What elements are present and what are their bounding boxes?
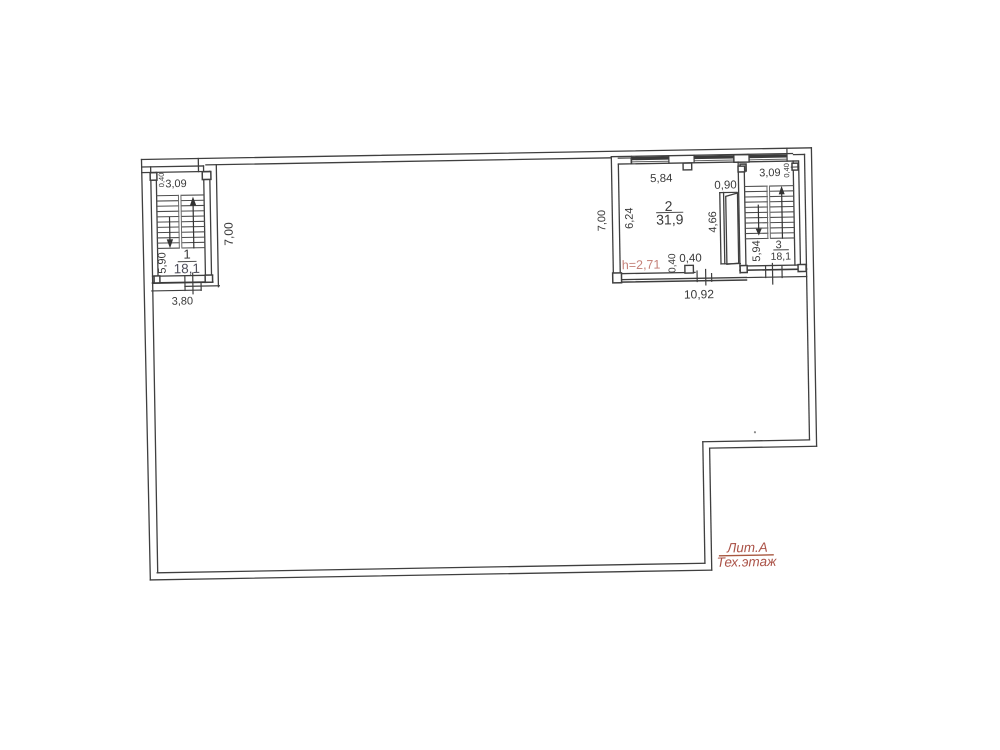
svg-text:h=2,71: h=2,71 (622, 258, 661, 273)
svg-text:18,1: 18,1 (174, 261, 201, 276)
svg-text:3,80: 3,80 (172, 295, 194, 307)
svg-text:3,09: 3,09 (165, 178, 187, 190)
svg-text:0,90: 0,90 (714, 179, 737, 191)
svg-text:5,90: 5,90 (156, 252, 168, 274)
svg-text:7,00: 7,00 (596, 210, 608, 232)
svg-text:3,09: 3,09 (759, 167, 781, 179)
svg-text:0,40: 0,40 (667, 253, 678, 273)
svg-text:0,40: 0,40 (782, 163, 791, 178)
svg-text:31,9: 31,9 (656, 211, 684, 227)
svg-text:Тех.этаж: Тех.этаж (717, 554, 778, 570)
svg-text:0,40: 0,40 (679, 253, 702, 265)
svg-text:6,24: 6,24 (624, 207, 636, 229)
svg-text:10,92: 10,92 (684, 287, 715, 302)
svg-text:5,84: 5,84 (650, 173, 673, 185)
svg-text:5,94: 5,94 (751, 240, 763, 262)
svg-text:Лит.А: Лит.А (726, 540, 768, 556)
svg-text:4,66: 4,66 (707, 211, 719, 233)
svg-text:1: 1 (183, 247, 190, 262)
svg-text:18,1: 18,1 (770, 251, 791, 263)
svg-text:7,00: 7,00 (221, 222, 235, 246)
